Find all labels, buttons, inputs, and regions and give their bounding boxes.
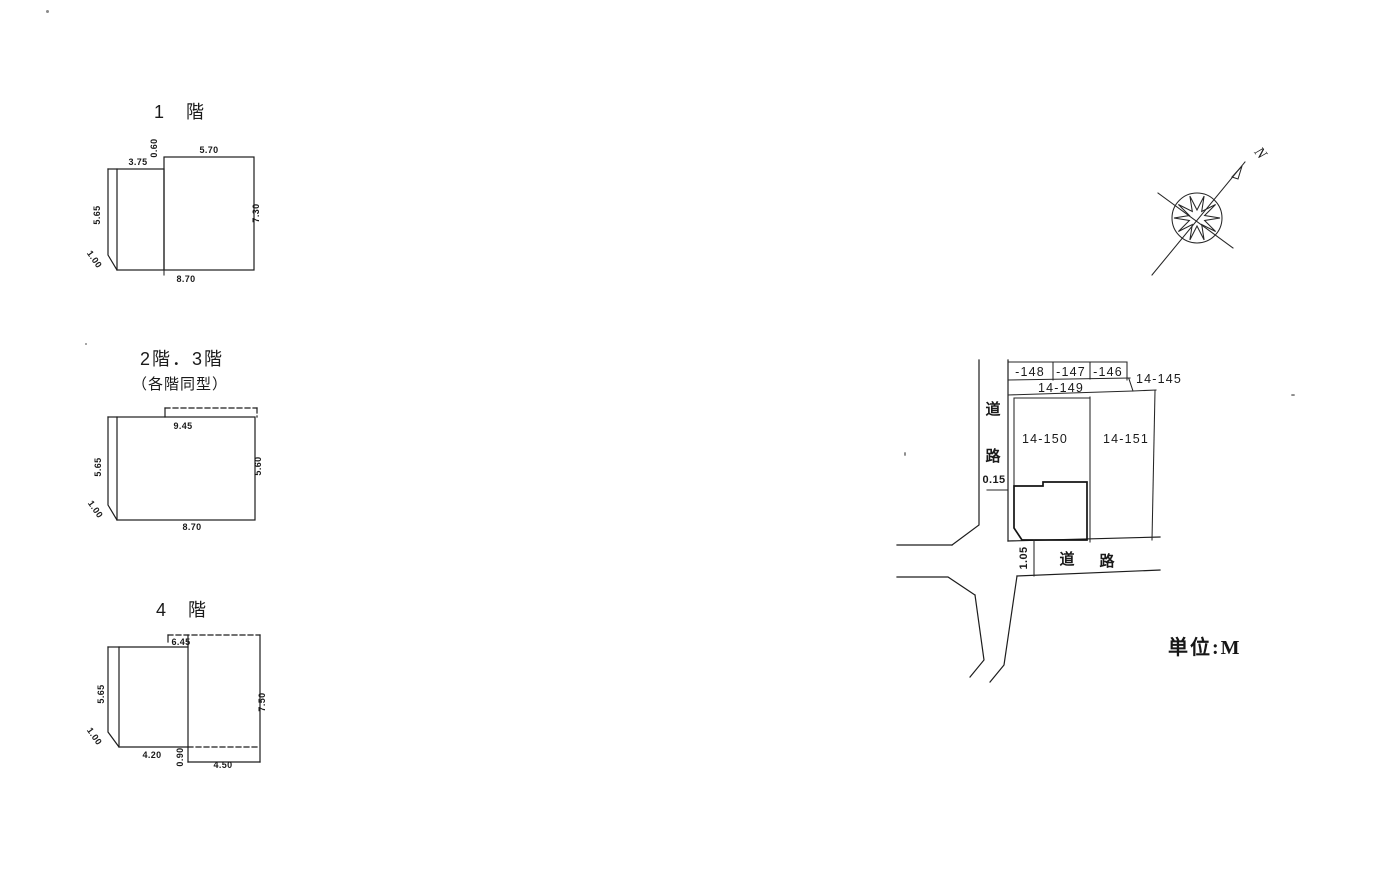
floor-2-3-dim-bottom: 8.70 bbox=[182, 522, 201, 532]
floor-1-dim-right: 7.30 bbox=[251, 203, 261, 222]
floor-4-dim-chamfer: 1.00 bbox=[85, 726, 104, 747]
floor-2-3-outline bbox=[117, 417, 255, 520]
floor-4-dim-top: 6.45 bbox=[171, 637, 190, 647]
road-lower-right-edge bbox=[990, 576, 1017, 682]
floor-4-left-boundary bbox=[108, 647, 119, 747]
road-horizontal-label-1: 道 bbox=[1059, 550, 1074, 568]
floor-1-dim-bottom: 8.70 bbox=[176, 274, 195, 284]
lot-label-149: 14-149 bbox=[1038, 381, 1084, 395]
road-lower-left-edge bbox=[970, 595, 984, 677]
floor-4-left-room bbox=[119, 647, 188, 747]
floor-1-dim-step: 0.60 bbox=[149, 138, 159, 157]
scan-speck bbox=[904, 452, 906, 456]
floor-plan-2-3: 2階．3階 （各階同型） 9.45 5.65 5.60 1.00 8.70 bbox=[80, 340, 300, 540]
floor-1-title: 1 階 bbox=[154, 102, 206, 122]
site-dim-road-offset: 0.15 bbox=[982, 474, 1005, 486]
floor-4-dim-bottom-left: 4.20 bbox=[142, 750, 161, 760]
floor-1-dim-chamfer: 1.00 bbox=[85, 249, 104, 270]
floor-1-left-boundary bbox=[108, 169, 117, 270]
floor-2-3-dim-right: 5.60 bbox=[253, 456, 263, 475]
compass-circle bbox=[1172, 193, 1222, 243]
road-vertical-label-2: 路 bbox=[985, 447, 1001, 465]
floor-2-3-dim-top: 9.45 bbox=[173, 421, 192, 431]
floor-1-left-room bbox=[117, 169, 164, 270]
floor-2-3-left-boundary bbox=[108, 417, 117, 520]
compass-north-line bbox=[1152, 162, 1245, 275]
scan-speck bbox=[46, 10, 49, 13]
floor-1-dim-top-left: 3.75 bbox=[128, 157, 147, 167]
scan-speck bbox=[85, 343, 87, 345]
site-dim-setback: 1.05 bbox=[1018, 546, 1030, 569]
scan-speck bbox=[1291, 394, 1295, 396]
floor-4-dim-left: 5.65 bbox=[96, 684, 106, 703]
road-vertical-left-edge bbox=[952, 360, 979, 545]
lot-label-145: 14-145 bbox=[1136, 372, 1182, 386]
floor-4-title: 4 階 bbox=[156, 600, 208, 620]
road-left-bottom-edge bbox=[897, 577, 975, 595]
floor-plan-1: 1 階 3.75 0.60 5.70 5.65 7.30 1.00 8.70 bbox=[80, 95, 300, 300]
building-footprint bbox=[1014, 482, 1087, 540]
lot-label-150: 14-150 bbox=[1022, 432, 1068, 446]
floor-plan-4: 4 階 6.45 5.65 7.50 1.00 4.20 0.90 4.50 bbox=[80, 590, 300, 805]
floor-2-3-dim-chamfer: 1.00 bbox=[86, 499, 105, 520]
road-horizontal-label-2: 路 bbox=[1099, 552, 1115, 570]
road-bottom-bottom-edge bbox=[1017, 570, 1160, 576]
floor-1-dim-top-right: 5.70 bbox=[199, 145, 218, 155]
lot-label-148: -148 bbox=[1015, 365, 1045, 379]
floor-2-3-title: 2階．3階 bbox=[140, 349, 224, 369]
north-label: N bbox=[1250, 144, 1270, 163]
lot-151-right-edge bbox=[1152, 391, 1155, 540]
floor-4-dim-right: 7.50 bbox=[257, 692, 267, 711]
lot-label-146: -146 bbox=[1093, 365, 1123, 379]
floor-1-right-room bbox=[164, 157, 254, 270]
floor-2-3-dim-left: 5.65 bbox=[93, 457, 103, 476]
floor-4-dim-step: 0.90 bbox=[175, 747, 185, 766]
floor-2-3-subtitle: （各階同型） bbox=[132, 376, 228, 393]
floor-4-dim-bottom-right: 4.50 bbox=[213, 760, 232, 770]
lot-145-left-edge bbox=[1129, 379, 1133, 391]
road-vertical-label-1: 道 bbox=[985, 400, 1000, 418]
north-compass: N bbox=[1130, 130, 1300, 290]
lot-label-151: 14-151 bbox=[1103, 432, 1149, 446]
lot-label-147: -147 bbox=[1056, 365, 1086, 379]
floor-1-dim-left: 5.65 bbox=[92, 205, 102, 224]
unit-label: 単位:M bbox=[1168, 631, 1242, 660]
